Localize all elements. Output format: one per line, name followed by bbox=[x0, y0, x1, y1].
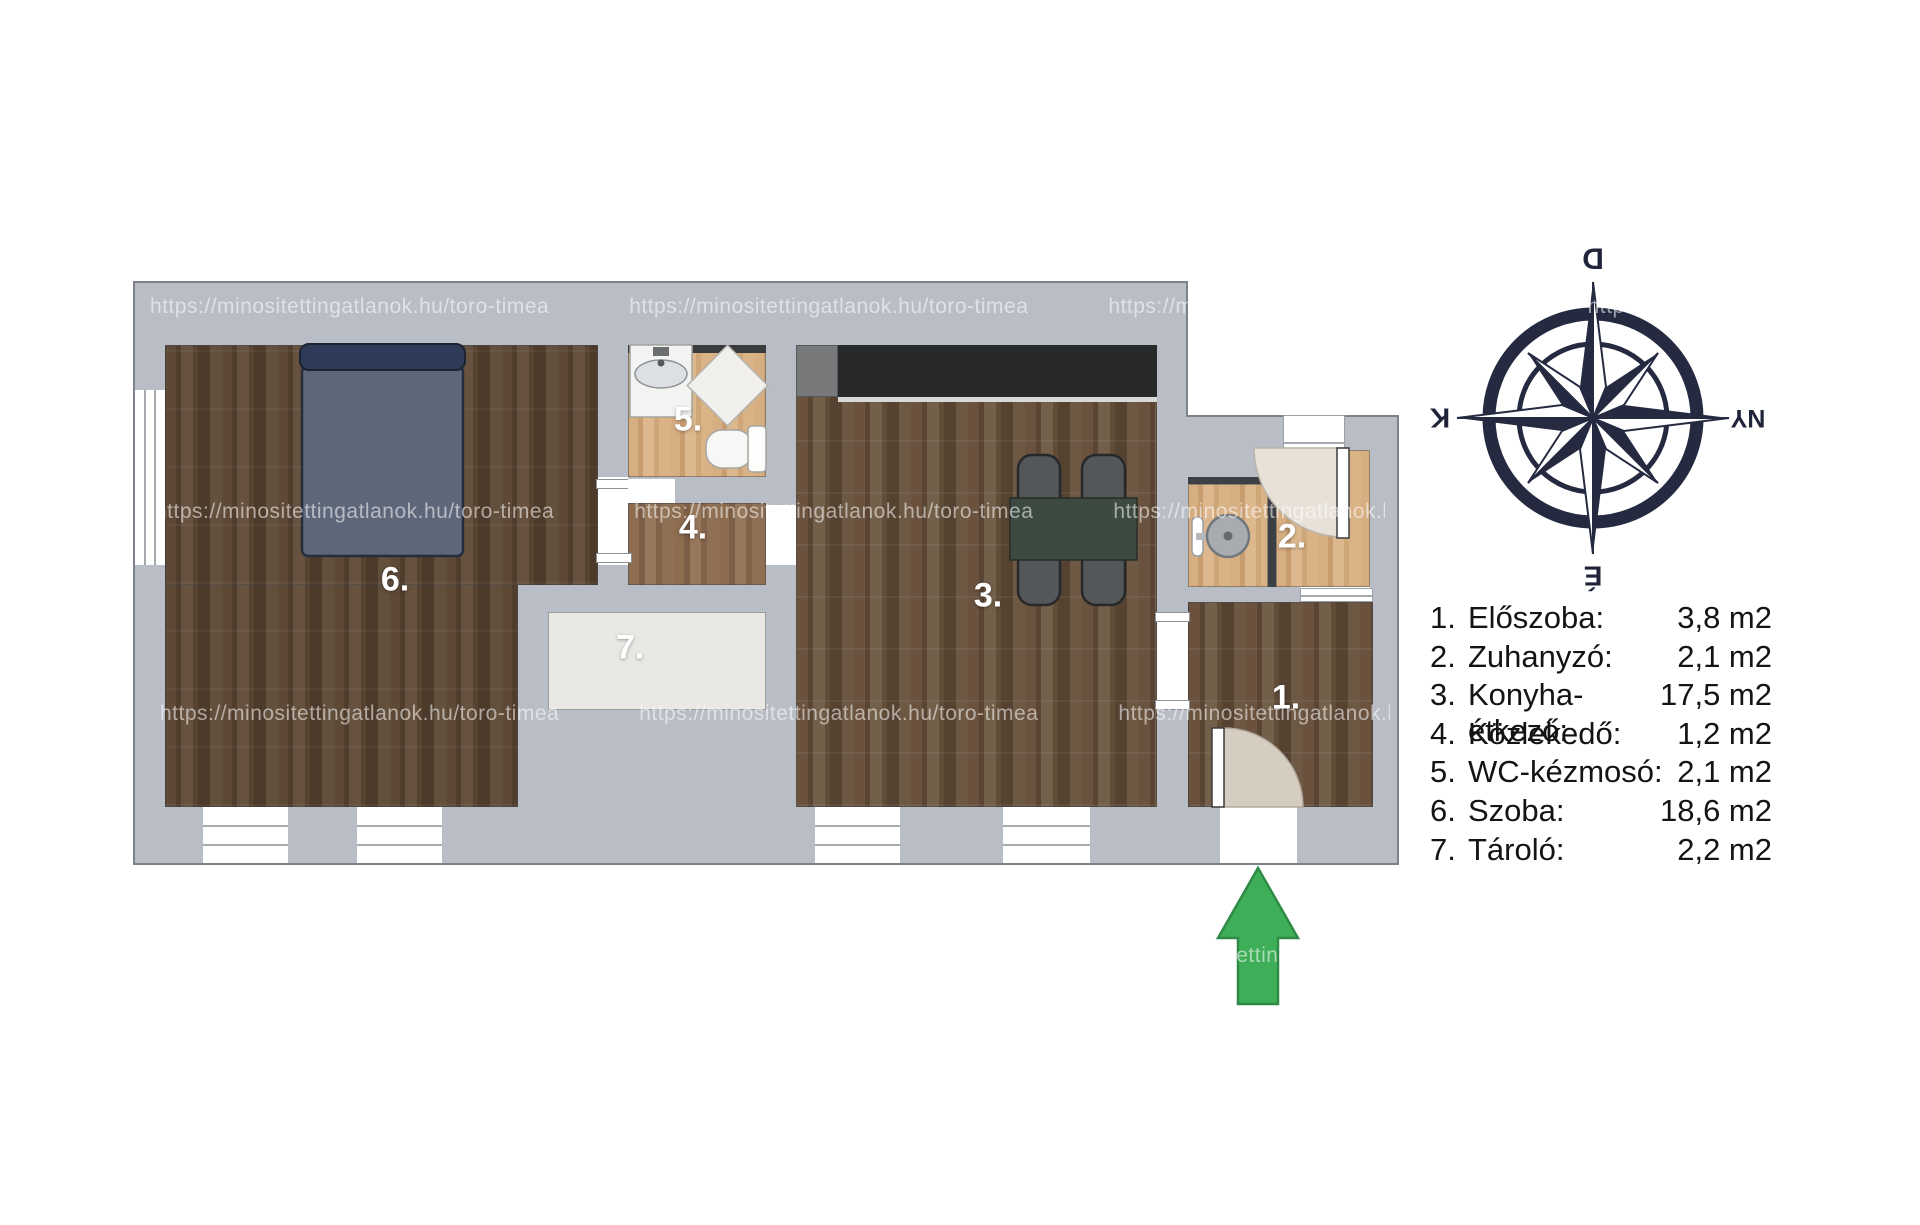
legend-room-name: Előszoba: bbox=[1468, 600, 1677, 636]
legend-room-area: 3,8 m2 bbox=[1677, 600, 1772, 636]
watermark-text: https://minositettingatlanok.hu/toro-tim… bbox=[160, 702, 559, 730]
legend-room-area: 1,2 m2 bbox=[1677, 716, 1772, 752]
watermark-text: https://minositettingatlanok.hu/toro-tim… bbox=[155, 500, 554, 528]
toilet-bowl bbox=[706, 430, 752, 468]
compass-label-west: NY bbox=[1730, 404, 1765, 432]
watermark-text: https://minositettingatlanok.hu/toro-tim… bbox=[1099, 944, 1410, 972]
room-label-5: 5. bbox=[674, 401, 702, 440]
bed-headboard bbox=[300, 344, 465, 370]
shower-head-center bbox=[1224, 532, 1233, 541]
legend-room-area: 17,5 m2 bbox=[1660, 677, 1772, 713]
watermark-text: https://minositettingatlanok.hu/toro-tim… bbox=[634, 500, 1033, 528]
room-label-6: 6. bbox=[381, 561, 409, 600]
watermark-text: https://minositettingatlanok.hu/toro-tim… bbox=[639, 702, 1038, 730]
legend-number: 5. bbox=[1430, 754, 1468, 790]
entry-door bbox=[1212, 728, 1303, 807]
legend-number: 3. bbox=[1430, 677, 1468, 713]
legend-row: 1. Előszoba: 3,8 m2 bbox=[1430, 600, 1772, 639]
watermark-text: https://minositettingatlanok.hu/toro-tim… bbox=[1588, 295, 1790, 323]
room-label-7: 7. bbox=[616, 629, 644, 668]
legend-row: 6. Szoba: 18,6 m2 bbox=[1430, 793, 1772, 832]
compass-label-south: D bbox=[1582, 242, 1604, 275]
watermark-text: https://minositettingatlanok.hu/toro-tim… bbox=[620, 944, 1019, 972]
legend-row: 7. Tároló: 2,2 m2 bbox=[1430, 832, 1772, 871]
legend-room-area: 2,1 m2 bbox=[1677, 754, 1772, 790]
legend-room-name: WC-kézmosó: bbox=[1468, 754, 1677, 790]
legend-number: 4. bbox=[1430, 716, 1468, 752]
legend-room-name: Tároló: bbox=[1468, 832, 1677, 868]
legend-row: 3. Konyha-étkező: 17,5 m2 bbox=[1430, 677, 1772, 716]
room-label-3: 3. bbox=[974, 577, 1002, 616]
legend-room-area: 2,2 m2 bbox=[1677, 832, 1772, 868]
compass-label-north: É bbox=[1584, 561, 1603, 592]
legend-row: 5. WC-kézmosó: 2,1 m2 bbox=[1430, 754, 1772, 793]
legend-room-name: Szoba: bbox=[1468, 793, 1660, 829]
faucet-icon bbox=[653, 347, 669, 356]
legend-number: 2. bbox=[1430, 639, 1468, 675]
floor-plan-page: D NY É K 6. 5. 4. 7. 3. 2. 1. https://mi… bbox=[0, 0, 1920, 1225]
legend-number: 7. bbox=[1430, 832, 1468, 868]
room-legend: 1. Előszoba: 3,8 m2 2. Zuhanyzó: 2,1 m2 … bbox=[1430, 600, 1772, 870]
watermark-band: https://minositettingatlanok.hu/toro-tim… bbox=[155, 500, 1385, 528]
watermark-band: https://minositettingatlanok.hu/toro-tim… bbox=[160, 702, 1390, 730]
legend-row: 4. Közlekedő: 1,2 m2 bbox=[1430, 716, 1772, 755]
toilet-tank bbox=[748, 426, 766, 472]
sink-drain-icon bbox=[658, 360, 665, 367]
watermark-band: https://minositettingatlanok.hu/toro-tim… bbox=[150, 295, 1790, 323]
compass-label-east: K bbox=[1430, 403, 1450, 434]
legend-number: 1. bbox=[1430, 600, 1468, 636]
watermark-text: https://minositettingatlanok.hu/toro-tim… bbox=[1108, 295, 1507, 323]
watermark-band: https://minositettingatlanok.hu/toro-tim… bbox=[620, 944, 1410, 972]
toilet bbox=[706, 426, 766, 472]
legend-row: 2. Zuhanyzó: 2,1 m2 bbox=[1430, 639, 1772, 678]
watermark-text: https://minositettingatlanok.hu/toro-tim… bbox=[150, 295, 549, 323]
entrance-arrow-icon bbox=[1218, 868, 1298, 1004]
watermark-text: https://minositettingatlanok.hu/toro-tim… bbox=[1118, 702, 1390, 730]
legend-room-name: Zuhanyzó: bbox=[1468, 639, 1677, 675]
legend-room-name: Közlekedő: bbox=[1468, 716, 1677, 752]
legend-room-area: 18,6 m2 bbox=[1660, 793, 1772, 829]
watermark-text: https://minositettingatlanok.hu/toro-tim… bbox=[1113, 500, 1385, 528]
compass-rose-icon: D NY É K bbox=[1430, 242, 1765, 592]
door-leaf bbox=[1212, 728, 1224, 807]
legend-room-area: 2,1 m2 bbox=[1677, 639, 1772, 675]
watermark-text: https://minositettingatlanok.hu/toro-tim… bbox=[629, 295, 1028, 323]
legend-number: 6. bbox=[1430, 793, 1468, 829]
dining-set bbox=[1010, 455, 1137, 605]
door-swing-arc bbox=[1224, 728, 1303, 807]
